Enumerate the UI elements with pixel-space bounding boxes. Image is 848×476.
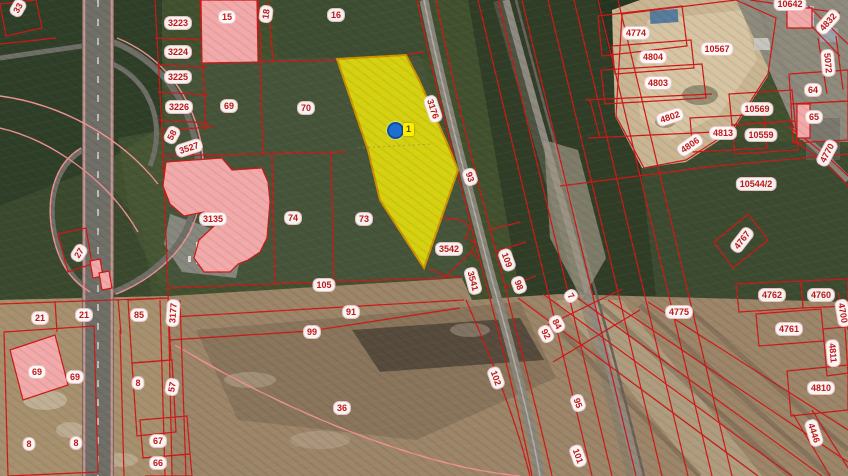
parcel-label-33: 33 [7,0,28,19]
parcel-label-69: 69 [66,370,84,384]
parcel-label-8: 8 [131,376,144,390]
parcel-label-4832: 4832 [813,7,842,37]
parcel-label-64: 64 [804,83,822,97]
parcel-label-8: 8 [22,437,35,451]
parcel-label-5072: 5072 [820,48,836,77]
parcel-label-18: 18 [258,4,274,24]
parcel-label-7: 7 [562,287,581,306]
selected-parcel-marker[interactable] [387,122,404,139]
parcel-label-91: 91 [342,305,360,319]
parcel-label-21: 21 [75,308,93,322]
parcel-label-4813: 4813 [709,126,737,140]
parcel-label-3541: 3541 [463,266,484,297]
parcel-label-99: 99 [303,325,321,339]
parcel-label-66: 66 [149,456,167,470]
parcel-label-27: 27 [68,242,89,265]
parcel-label-101: 101 [567,443,588,469]
parcel-label-10642: 10642 [773,0,806,11]
parcel-label-3225: 3225 [164,70,192,84]
parcel-label-4774: 4774 [622,26,650,40]
parcel-label-4761: 4761 [775,322,803,336]
parcel-label-85: 85 [130,308,148,322]
parcel-label-3224: 3224 [164,45,192,59]
parcel-label-3135: 3135 [199,212,227,226]
parcel-label-3226: 3226 [165,100,193,114]
parcel-label-102: 102 [485,365,506,391]
parcel-label-8: 8 [69,436,82,450]
parcel-label-4775: 4775 [665,305,693,319]
parcel-label-3223: 3223 [164,16,192,30]
parcel-label-67: 67 [149,434,167,448]
parcel-label-4770: 4770 [814,137,840,168]
parcel-label-15: 15 [218,10,236,24]
parcel-label-98: 98 [509,274,528,296]
parcel-label-21: 21 [31,311,49,325]
parcel-label-4700: 4700 [834,298,848,328]
parcel-label-57: 57 [164,377,181,397]
parcel-label-10544-2: 10544/2 [736,177,777,191]
parcel-label-16: 16 [327,8,345,22]
parcel-label-4804: 4804 [639,50,667,64]
parcel-label-105: 105 [312,278,335,292]
parcel-label-74: 74 [284,211,302,225]
parcel-label-4806: 4806 [675,131,706,159]
parcel-label-4446: 4446 [803,418,825,449]
map-canvas[interactable]: 3332231518163224322532266970583527317693… [0,0,848,476]
parcel-label-69: 69 [28,365,46,379]
parcel-label-4762: 4762 [758,288,786,302]
parcel-label-93: 93 [461,166,480,187]
parcel-label-4811: 4811 [825,339,841,368]
parcel-label-69: 69 [220,99,238,113]
parcel-label-10567: 10567 [700,42,733,56]
parcel-label-95: 95 [568,392,587,414]
parcel-label-109: 109 [496,247,517,273]
parcel-label-65: 65 [805,110,823,124]
selected-parcel-marker-tag: 1 [403,123,414,136]
parcel-label-3542: 3542 [435,242,463,256]
parcel-label-73: 73 [355,212,373,226]
parcel-label-70: 70 [297,101,315,115]
parcel-label-3527: 3527 [174,137,205,159]
parcel-label-4767: 4767 [728,225,756,256]
parcel-label-10559: 10559 [744,128,777,142]
parcel-labels-layer: 3332231518163224322532266970583527317693… [0,0,848,476]
parcel-label-4760: 4760 [807,288,835,302]
parcel-label-3176: 3176 [422,94,444,125]
parcel-label-10569: 10569 [740,102,773,116]
parcel-label-4810: 4810 [807,381,835,395]
parcel-label-3177: 3177 [165,299,181,328]
parcel-label-4802: 4802 [655,106,686,128]
parcel-label-36: 36 [333,401,351,415]
parcel-label-4803: 4803 [644,76,672,90]
